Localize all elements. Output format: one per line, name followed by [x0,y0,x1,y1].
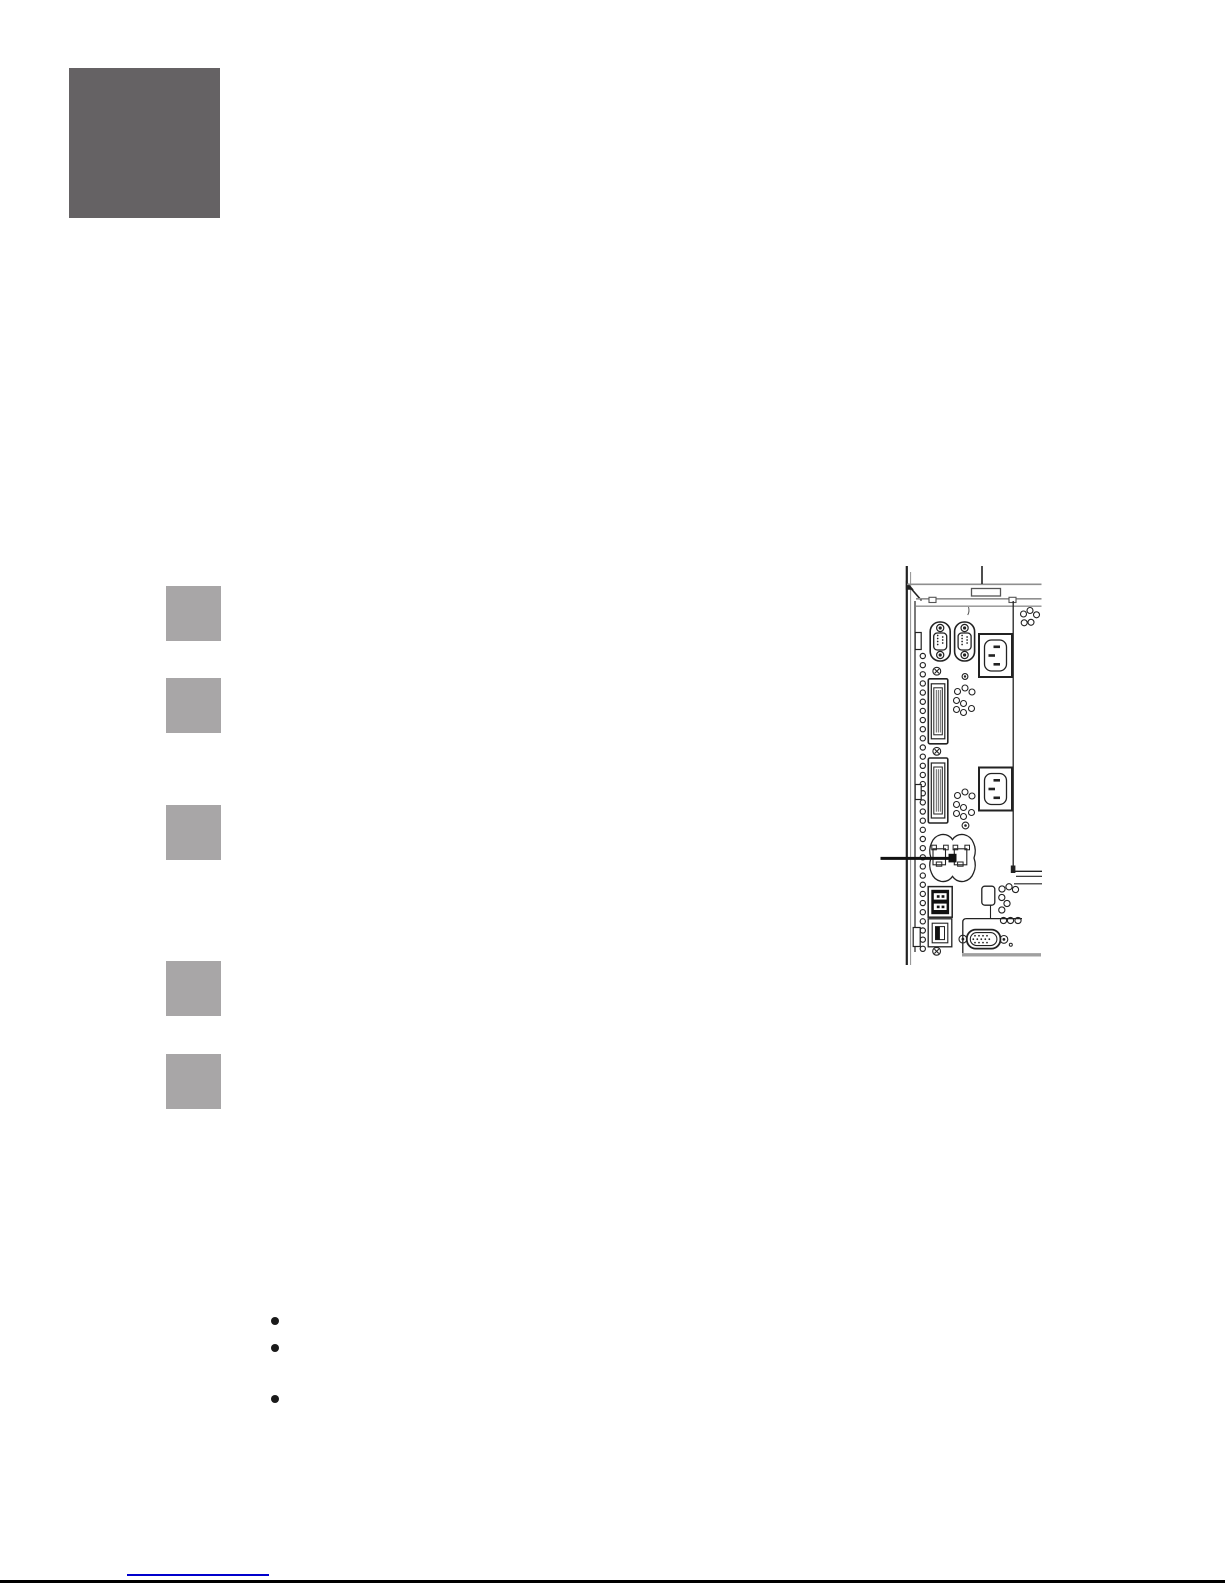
footer-link[interactable] [127,1574,269,1576]
printer-rear-panel-diagram [870,550,1050,975]
hole-cluster [999,884,1021,924]
bullet-icon [271,1395,279,1403]
cabinet-edge-lines [906,566,922,965]
step-number-box [166,961,221,1016]
step-number-box [166,678,221,733]
rear-panel-figure [870,550,1050,975]
parallel-port-icon [928,679,948,744]
usb-b-port-icon [928,919,952,947]
bullet-icon [271,1344,279,1352]
hole-cluster [954,789,976,820]
power-inlet-icon [979,768,1012,811]
step-number-box [166,586,221,641]
power-inlet-icon [979,634,1012,677]
hole-cluster [1021,608,1040,626]
bullet-icon [271,1317,279,1325]
parallel-port-icon [928,758,948,823]
db9-serial-port-icon [955,622,975,661]
usb-a-stack-icon [928,887,952,918]
hole-cluster [954,685,976,716]
panel-edge-and-shelf [1011,601,1042,884]
chapter-tab-square [69,68,220,218]
db9-serial-port-icon [930,622,950,661]
step-number-box [166,805,221,860]
footer-rule [0,1580,1225,1583]
manual-page [0,0,1225,1585]
vga-port-icon [959,930,1012,949]
top-edge-and-handle [907,566,1042,615]
step-number-box [166,1054,221,1109]
